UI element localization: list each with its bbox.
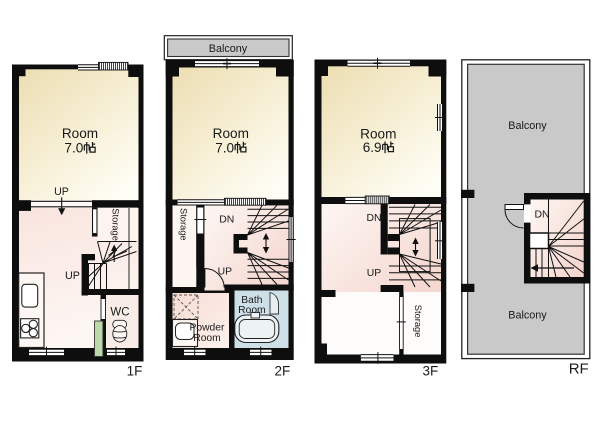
svg-text:RF: RF xyxy=(569,360,589,377)
svg-text:UP: UP xyxy=(65,270,80,282)
svg-text:DN: DN xyxy=(366,213,381,224)
svg-text:UP: UP xyxy=(367,268,382,279)
svg-text:Room: Room xyxy=(193,333,220,344)
svg-text:7.0: 7.0 xyxy=(64,141,83,156)
svg-text:UP: UP xyxy=(54,186,69,198)
svg-text:2F: 2F xyxy=(275,364,291,379)
svg-text:Room: Room xyxy=(62,126,98,141)
svg-text:Storage: Storage xyxy=(413,305,423,338)
svg-text:UP: UP xyxy=(218,266,233,277)
svg-text:Powder: Powder xyxy=(190,322,225,333)
svg-text:Balcony: Balcony xyxy=(508,120,547,132)
svg-text:Room: Room xyxy=(238,305,265,316)
svg-text:3F: 3F xyxy=(423,364,439,379)
svg-text:DN: DN xyxy=(534,209,549,220)
svg-text:6.9: 6.9 xyxy=(363,140,382,155)
svg-text:1F: 1F xyxy=(127,364,143,379)
svg-text:7.0: 7.0 xyxy=(215,140,234,155)
svg-text:Storage: Storage xyxy=(178,208,188,241)
svg-text:Balcony: Balcony xyxy=(209,43,248,55)
svg-text:Room: Room xyxy=(213,126,249,141)
svg-text:DN: DN xyxy=(219,214,234,225)
svg-text:WC: WC xyxy=(110,307,129,319)
svg-text:Storage: Storage xyxy=(110,208,120,241)
svg-text:Balcony: Balcony xyxy=(508,310,547,322)
